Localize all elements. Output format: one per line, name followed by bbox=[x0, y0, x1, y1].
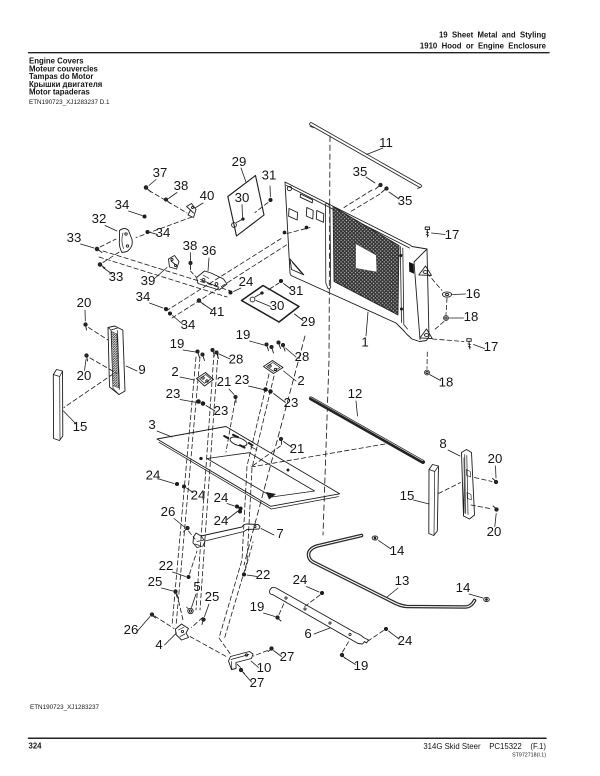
svg-text:37: 37 bbox=[153, 165, 168, 180]
svg-text:2: 2 bbox=[171, 364, 178, 379]
svg-text:11: 11 bbox=[379, 135, 393, 150]
svg-text:3: 3 bbox=[148, 417, 155, 432]
svg-text:36: 36 bbox=[202, 243, 217, 258]
svg-text:24: 24 bbox=[293, 572, 308, 587]
svg-text:8: 8 bbox=[439, 436, 446, 451]
svg-text:35: 35 bbox=[398, 193, 413, 208]
svg-text:33: 33 bbox=[109, 269, 124, 284]
svg-text:39: 39 bbox=[141, 273, 156, 288]
svg-text:40: 40 bbox=[200, 188, 215, 203]
svg-text:20: 20 bbox=[77, 295, 92, 310]
svg-text:29: 29 bbox=[301, 314, 316, 329]
svg-text:30: 30 bbox=[270, 298, 285, 313]
svg-text:21: 21 bbox=[290, 441, 305, 456]
svg-text:28: 28 bbox=[229, 352, 244, 367]
svg-text:41: 41 bbox=[210, 304, 225, 319]
svg-text:13: 13 bbox=[395, 573, 410, 588]
svg-text:26: 26 bbox=[161, 504, 176, 519]
svg-text:ETN190723_XJ1283237: ETN190723_XJ1283237 bbox=[30, 704, 99, 711]
svg-text:25: 25 bbox=[148, 574, 163, 589]
svg-text:324: 324 bbox=[29, 742, 43, 751]
svg-text:15: 15 bbox=[400, 488, 415, 503]
svg-text:ETN190723_XJ1283237 D.1: ETN190723_XJ1283237 D.1 bbox=[29, 99, 110, 106]
svg-text:35: 35 bbox=[353, 164, 368, 179]
svg-text:24: 24 bbox=[146, 468, 161, 483]
svg-text:19 Sheet Metal and Styling: 19 Sheet Metal and Styling bbox=[439, 31, 546, 40]
svg-text:Motor tapaderas: Motor tapaderas bbox=[29, 88, 90, 97]
svg-text:31: 31 bbox=[262, 168, 277, 183]
svg-text:32: 32 bbox=[92, 211, 107, 226]
svg-text:31: 31 bbox=[289, 283, 304, 298]
svg-text:33: 33 bbox=[67, 230, 82, 245]
svg-text:38: 38 bbox=[174, 178, 189, 193]
svg-text:24: 24 bbox=[398, 633, 413, 648]
svg-text:2: 2 bbox=[297, 373, 304, 388]
svg-text:23: 23 bbox=[166, 386, 181, 401]
svg-text:1: 1 bbox=[361, 335, 368, 350]
svg-text:30: 30 bbox=[235, 190, 250, 205]
svg-text:29: 29 bbox=[232, 154, 247, 169]
svg-text:14: 14 bbox=[456, 580, 471, 595]
svg-text:314G Skid Steer PC15322: 314G Skid Steer PC15322 (F.1) bbox=[423, 742, 546, 751]
svg-text:17: 17 bbox=[445, 227, 460, 242]
svg-text:18: 18 bbox=[439, 375, 454, 390]
svg-text:17: 17 bbox=[484, 339, 499, 354]
svg-text:22: 22 bbox=[159, 558, 174, 573]
svg-text:9: 9 bbox=[138, 362, 145, 377]
svg-text:20: 20 bbox=[77, 368, 92, 383]
svg-text:28: 28 bbox=[295, 349, 310, 364]
svg-text:20: 20 bbox=[488, 451, 503, 466]
svg-text:20: 20 bbox=[487, 524, 502, 539]
svg-text:23: 23 bbox=[214, 403, 229, 418]
svg-text:23: 23 bbox=[235, 372, 250, 387]
svg-text:16: 16 bbox=[466, 286, 481, 301]
svg-text:24: 24 bbox=[214, 513, 229, 528]
svg-text:7: 7 bbox=[276, 526, 283, 541]
svg-text:14: 14 bbox=[390, 543, 405, 558]
svg-text:24: 24 bbox=[191, 488, 206, 503]
svg-text:34: 34 bbox=[115, 197, 130, 212]
svg-text:27: 27 bbox=[250, 675, 265, 690]
svg-text:26: 26 bbox=[124, 622, 139, 637]
svg-text:19: 19 bbox=[354, 658, 369, 673]
svg-text:15: 15 bbox=[73, 419, 88, 434]
svg-text:22: 22 bbox=[256, 567, 271, 582]
svg-text:ST972718(I.1): ST972718(I.1) bbox=[512, 753, 546, 759]
svg-text:24: 24 bbox=[214, 490, 229, 505]
svg-text:12: 12 bbox=[348, 386, 363, 401]
svg-text:5: 5 bbox=[193, 579, 200, 594]
svg-text:34: 34 bbox=[136, 289, 151, 304]
svg-text:25: 25 bbox=[205, 589, 220, 604]
svg-text:19: 19 bbox=[250, 599, 265, 614]
svg-text:24: 24 bbox=[239, 274, 254, 289]
svg-text:21: 21 bbox=[217, 374, 232, 389]
svg-text:34: 34 bbox=[156, 225, 171, 240]
svg-text:38: 38 bbox=[183, 238, 198, 253]
svg-text:4: 4 bbox=[155, 637, 162, 652]
svg-text:1910 Hood or Engine Enclos: 1910 Hood or Engine Enclosure bbox=[420, 42, 547, 51]
svg-text:18: 18 bbox=[464, 309, 479, 324]
svg-text:19: 19 bbox=[170, 336, 185, 351]
svg-text:6: 6 bbox=[304, 626, 311, 641]
svg-text:19: 19 bbox=[236, 327, 251, 342]
